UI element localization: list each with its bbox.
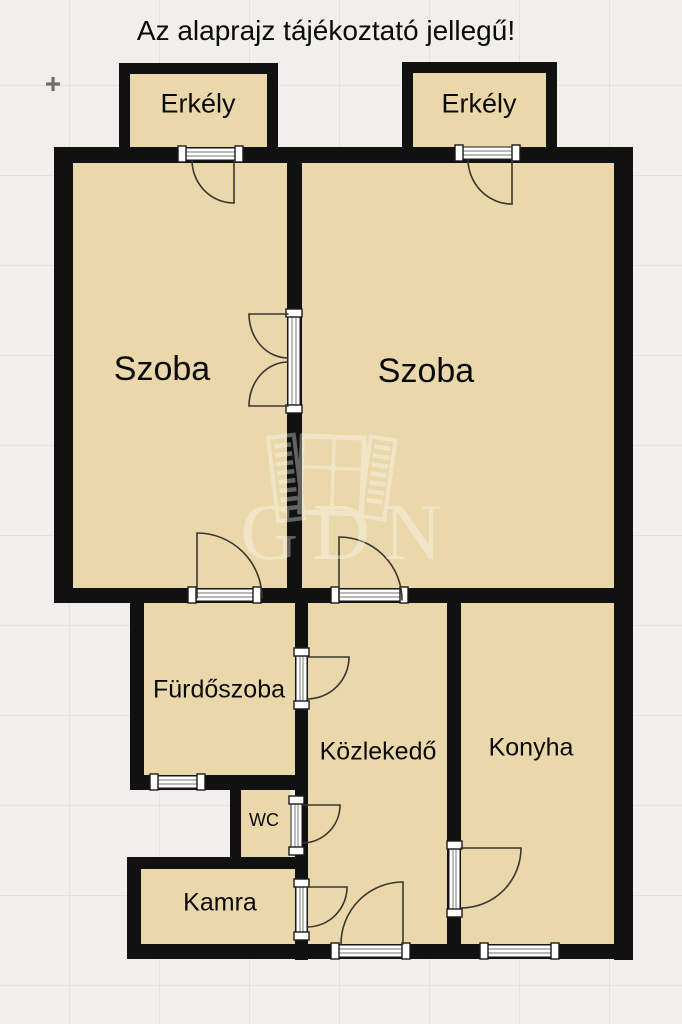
label-bathroom: Fürdőszoba — [153, 678, 285, 703]
double-door-sill — [286, 309, 302, 413]
floor-hallway — [308, 603, 447, 944]
label-balcony-left: Erkély — [160, 91, 235, 118]
kitchen-door-sill — [447, 841, 462, 917]
floor-kitchen — [461, 603, 614, 944]
label-kitchen: Konyha — [489, 736, 574, 761]
entrance-threshold — [331, 943, 410, 959]
label-balcony-right: Erkély — [441, 91, 516, 118]
balcony-left-door-sill — [178, 146, 243, 162]
watermark-text: GDN — [240, 489, 455, 577]
label-wc: WC — [249, 811, 279, 829]
floorplan-drawing: GDN — [0, 0, 682, 1024]
label-room-left: Szoba — [114, 352, 210, 386]
floorplan-page: GDN Az alaprajz tájékoztató jellegű! Erk… — [0, 0, 682, 1024]
plus-marker — [46, 77, 60, 91]
disclaimer-title: Az alaprajz tájékoztató jellegű! — [137, 17, 515, 45]
label-hallway: Közlekedő — [320, 740, 437, 765]
room-left-door-threshold — [188, 587, 261, 603]
balcony-right-door-sill — [455, 145, 520, 161]
pantry-door-sill — [294, 879, 309, 940]
label-room-right: Szoba — [378, 354, 474, 388]
bathroom-window — [150, 774, 205, 790]
kitchen-window — [480, 943, 559, 959]
room-right-door-threshold — [331, 587, 408, 603]
label-pantry: Kamra — [183, 891, 257, 916]
